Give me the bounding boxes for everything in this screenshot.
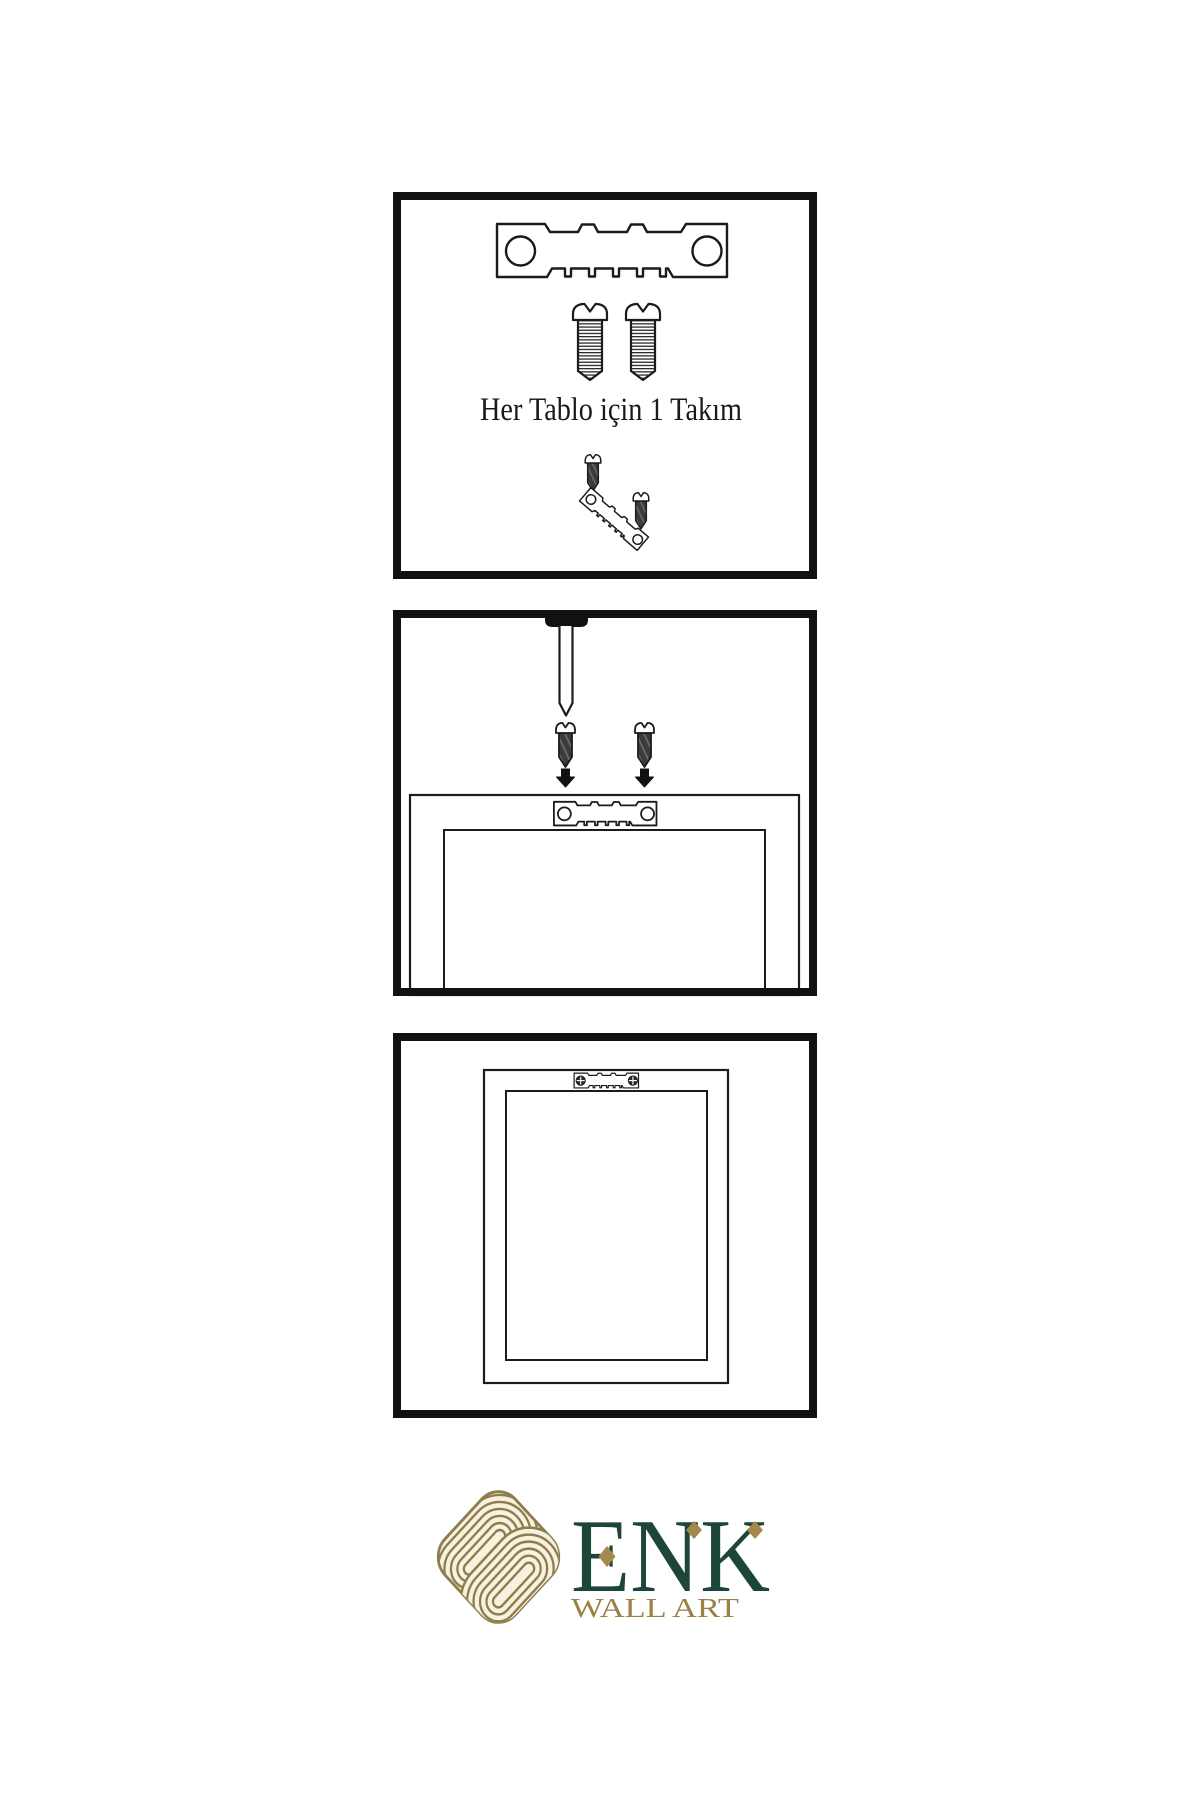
svg-text:Her Tablo için 1 Takım: Her Tablo için 1 Takım: [480, 392, 742, 428]
svg-text:WALL ART: WALL ART: [571, 1593, 740, 1623]
